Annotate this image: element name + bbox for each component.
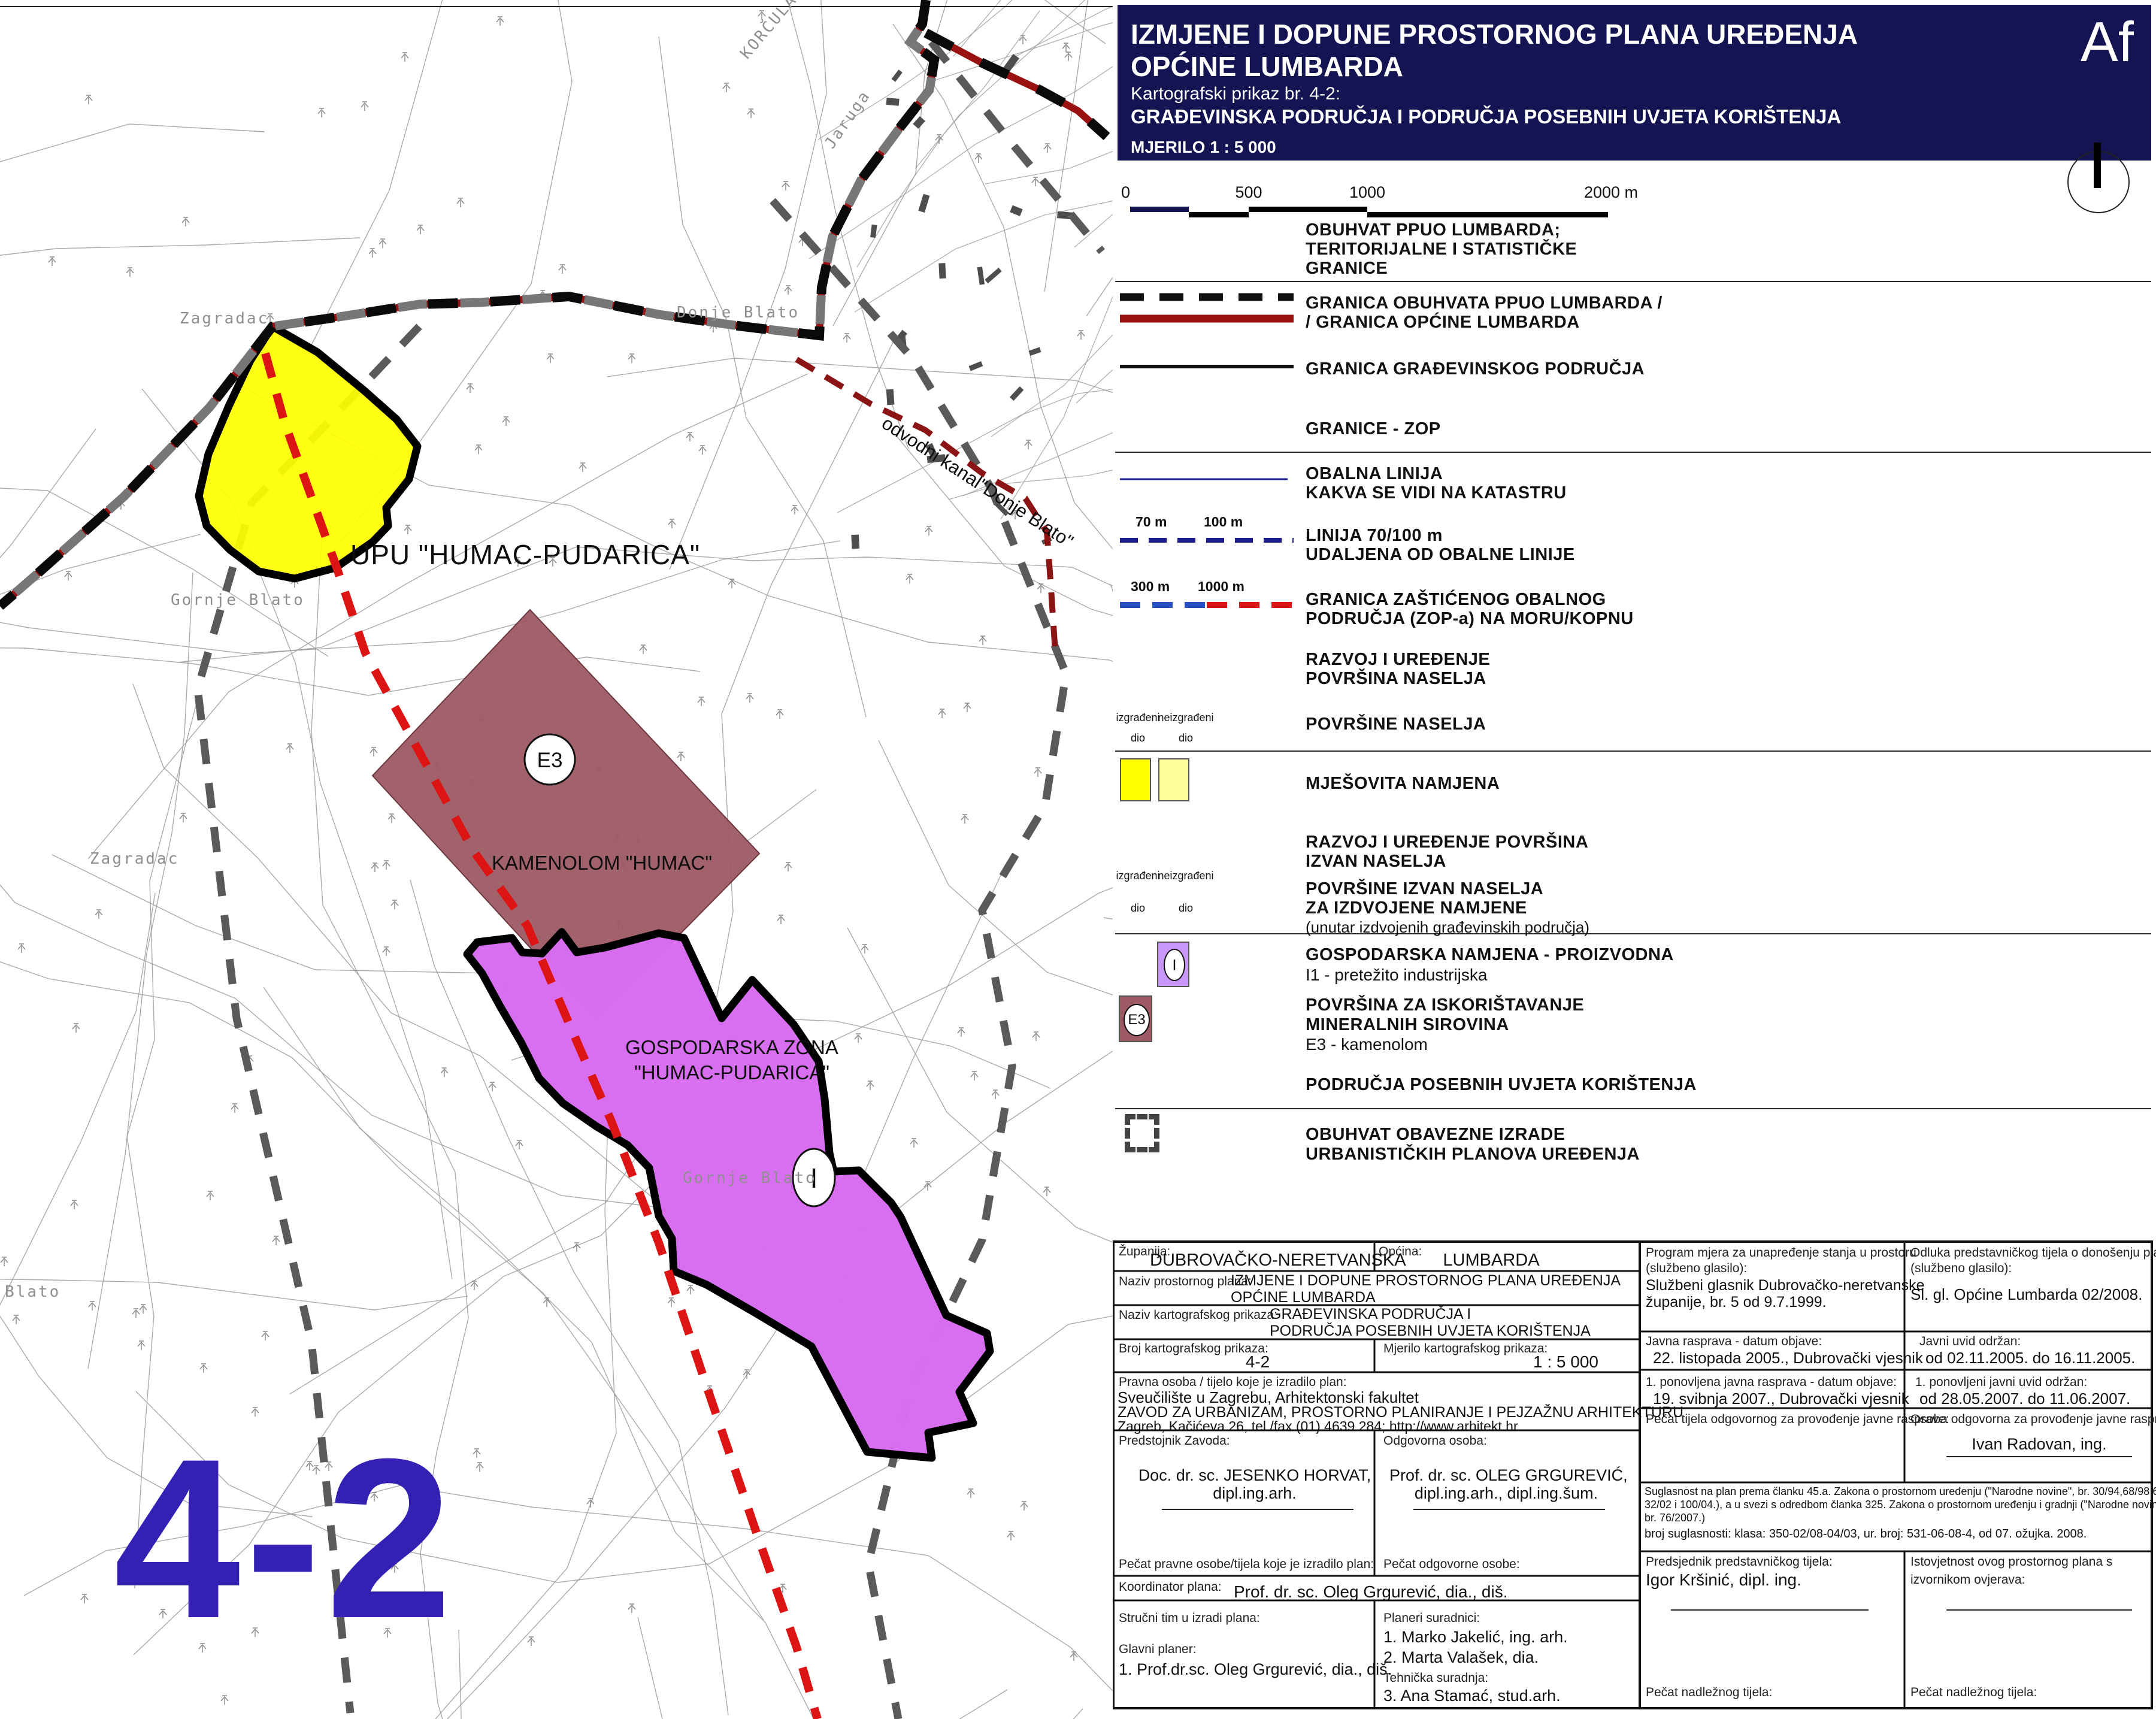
scale-tick-0: 0 (1121, 183, 1130, 202)
legend-mineralne-l3: E3 - kamenolom (1306, 1035, 1428, 1054)
legend-gospodarska-l2: I1 - pretežito industrijska (1306, 966, 1487, 985)
coordinator-value: Prof. dr. sc. Oleg Grgurević, dia., diš. (1234, 1582, 1508, 1602)
tech-support-value: 3. Ana Stamać, stud.arh. (1383, 1687, 1561, 1705)
legend-header-posebni: PODRUČJA POSEBNIH UVJETA KORIŠTENJA (1306, 1075, 1697, 1095)
scale-tick-2000: 2000 m (1566, 183, 1656, 202)
legal-entity-line3: Zagreb, Kačićeva 26, tel./fax.(01) 4639 … (1118, 1418, 1518, 1434)
plan-title-line1: IZMJENE I DOPUNE PROSTORNOG PLANA UREĐEN… (1131, 18, 1858, 50)
legend-linija70-l1: LINIJA 70/100 m (1306, 526, 1443, 546)
legend-dividers (1115, 282, 2151, 1109)
legend-mineralne-l1: POVRŠINA ZA ISKORIŠTAVANJE (1306, 995, 1584, 1015)
legend-300m-label: 300 m (1131, 579, 1170, 595)
svg-text:Gornje Blato: Gornje Blato (683, 1169, 817, 1187)
scale-bar-seg4 (1367, 212, 1608, 217)
responsible-person-title: dipl.ing.arh., dipl.ing.šum. (1389, 1484, 1623, 1503)
sheet-no-value: 4-2 (1210, 1352, 1306, 1372)
authenticity-label-1: Istovjetnost ovog prostornog plana s (1910, 1555, 2112, 1569)
quarry-label: KAMENOLOM "HUMAC" (492, 852, 712, 874)
responsible-debate-label: Osoba odgovorna za provođenje javne rasp… (1910, 1412, 2156, 1427)
municipality-value: LUMBARDA (1425, 1251, 1557, 1270)
legend-linija70-l2: UDALJENA OD OBALNE LINIJE (1306, 545, 1575, 565)
legend-col-dio-1b: dio (1155, 732, 1217, 745)
stamp-responsible-label: Pečat odgovorne osobe: (1383, 1557, 1520, 1572)
svg-text:Gornje Blato: Gornje Blato (171, 591, 305, 609)
legend-col-neizgradeni-2: neizgrađeni (1155, 870, 1217, 882)
sheet-number: 4-2 (114, 1411, 457, 1666)
scale-label: Mjerilo kartografskog prikaza: (1383, 1342, 1548, 1356)
canal-label: odvodni kanal"Donje Blato" (878, 413, 1077, 552)
plan-sheet: E3 I UPU "HUMAC-PUDARICA" KAMENOLOM "HUM… (0, 0, 2156, 1719)
panel-linework (1113, 0, 2156, 1719)
legend-obuhvat-l3: GRANICE (1306, 259, 1388, 279)
head-of-dept-label: Predstojnik Zavoda: (1119, 1434, 1230, 1448)
repeat-review-label: 1. ponovljeni javni uvid održan: (1915, 1375, 2087, 1390)
responsible-person-label: Odgovorna osoba: (1383, 1434, 1487, 1448)
legend-1000m-label: 1000 m (1198, 579, 1244, 595)
legend-granica-ppuo-l2: / GRANICA OPĆINE LUMBARDA (1306, 313, 1580, 332)
north-indicator-bar (2094, 143, 2101, 188)
zone-industrial-border (467, 932, 990, 1458)
swatch-mixed-built (1120, 758, 1151, 801)
legend-obavezna-l1: OBUHVAT OBAVEZNE IZRADE (1306, 1125, 1565, 1145)
stamp-authority-label-1: Pečat nadležnog tijela: (1646, 1685, 1772, 1700)
authenticity-label-2: izvornikom ovjerava: (1910, 1573, 2025, 1587)
legend-zop-granica-l1: GRANICA ZAŠTIĆENOG OBALNOG (1306, 590, 1606, 610)
legend-header-izvan-l2: IZVAN NASELJA (1306, 852, 1446, 871)
decision-label-2: (službeno glasilo): (1910, 1261, 2012, 1276)
municipality-label: Općina: (1379, 1245, 1422, 1259)
head-of-dept-title: dipl.ing.arh. (1138, 1484, 1371, 1503)
public-debate-value: 22. listopada 2005., Dubrovački vjesnik (1653, 1349, 1923, 1367)
county-value: DUBROVAČKO-NERETVANSKA (1150, 1251, 1371, 1270)
sheet-name-value-1: GRAĐEVINSKA PODRUČJA I (1270, 1306, 1471, 1323)
consent-line-3: br. 76/2007.) (1645, 1512, 1705, 1524)
legend-col-neizgradeni-1: neizgrađeni (1155, 712, 1217, 724)
svg-text:Zagradac: Zagradac (180, 310, 269, 328)
repeat-review-value: od 28.05.2007. do 11.06.2007. (1919, 1390, 2130, 1408)
legal-entity-label: Pravna osoba / tijelo koje je izradilo p… (1119, 1375, 1347, 1390)
tech-support-label: Tehnička suradnja: (1383, 1671, 1488, 1685)
legend-obuhvat-l1: OBUHVAT PPUO LUMBARDA; (1306, 220, 1561, 240)
plan-name-value-1: IZMJENE I DOPUNE PROSTORNOG PLANA UREĐEN… (1231, 1272, 1621, 1290)
program-label-1: Program mjera za unapređenje stanja u pr… (1646, 1246, 1916, 1260)
scale-tick-500: 500 (1222, 183, 1276, 202)
title-block: IZMJENE I DOPUNE PROSTORNOG PLANA UREĐEN… (1118, 5, 2151, 161)
legend-70m-label: 70 m (1135, 514, 1167, 530)
municipal-boundary (0, 0, 1107, 606)
zone-code-e3: E3 (537, 749, 563, 772)
sheet-name-value-2: PODRUČJA POSEBNIH UVJETA KORIŠTENJA (1270, 1322, 1591, 1340)
legend-obavezna-l2: URBANISTIČKIH PLANOVA UREĐENJA (1306, 1145, 1640, 1164)
legend-gradjevinsko: GRANICA GRAĐEVINSKOG PODRUČJA (1306, 359, 1645, 379)
legend-gospodarska-l1: GOSPODARSKA NAMJENA - PROIZVODNA (1306, 945, 1674, 965)
legend-izvan-l3: (unutar izdvojenih građevinskih područja… (1306, 918, 1589, 937)
legend-mjesovita: MJEŠOVITA NAMJENA (1306, 774, 1500, 794)
legend-mineralne-l2: MINERALNIH SIROVINA (1306, 1015, 1509, 1035)
swatch-i-letter: I (1172, 956, 1176, 974)
scale-bar-seg3 (1249, 207, 1367, 212)
svg-text:KORČULA: KORČULA (736, 0, 801, 62)
plan-subtitle: Kartografski prikaz br. 4-2: (1131, 84, 1340, 104)
faculty-logo: Af (2081, 10, 2134, 74)
public-review-value: od 02.11.2005. do 16.11.2005. (1925, 1349, 2135, 1367)
legend-zop-granica-l2: PODRUČJA (ZOP-a) NA MORU/KOPNU (1306, 609, 1634, 629)
main-planner-value: 1. Prof.dr.sc. Oleg Grgurević, dia., diš… (1119, 1660, 1392, 1679)
coordinator-label: Koordinator plana: (1119, 1580, 1222, 1594)
legend-header-izvan-l1: RAZVOJ I UREĐENJE POVRŠINA (1306, 833, 1588, 852)
head-of-dept-name: Doc. dr. sc. JESENKO HORVAT, (1138, 1466, 1371, 1485)
legend-col-dio-2b: dio (1155, 902, 1217, 915)
program-label-2: (službeno glasilo): (1646, 1261, 1747, 1276)
map-sheet-name: GRAĐEVINSKA PODRUČJA I PODRUČJA POSEBNIH… (1131, 105, 1841, 128)
swatch-quarry-code: E3 (1124, 1004, 1150, 1036)
consent-number: broj suglasnosti: klasa: 350-02/08-04/03… (1645, 1527, 2087, 1541)
president-label: Predsjednik predstavničkog tijela: (1646, 1555, 1833, 1569)
map-scale-text: MJERILO 1 : 5 000 (1131, 138, 1276, 157)
consent-line-1: Suglasnost na plan prema članku 45.a. Za… (1645, 1485, 2156, 1498)
president-value: Igor Kršinić, dipl. ing. (1646, 1570, 1801, 1590)
legend-obalna-l2: KAKVA SE VIDI NA KATASTRU (1306, 483, 1567, 503)
scale-tick-1000: 1000 (1337, 183, 1397, 202)
consent-line-2: 32/02 i 100/04.), a u svezi s odredbom č… (1645, 1499, 2156, 1511)
repeat-debate-value: 19. svibnja 2007., Dubrovački vjesnik (1653, 1390, 1909, 1408)
svg-text:Blato: Blato (5, 1283, 60, 1301)
scale-bar-seg1 (1130, 207, 1189, 212)
repeat-debate-label: 1. ponovljena javna rasprava - datum obj… (1646, 1375, 1897, 1390)
legend-header-zop: GRANICE - ZOP (1306, 419, 1441, 439)
swatch-e3-letter: E3 (1128, 1012, 1145, 1028)
public-debate-label: Javna rasprava - datum objave: (1646, 1334, 1822, 1349)
upu-area-label: UPU "HUMAC-PUDARICA" (350, 539, 700, 570)
main-planner-label: Glavni planer: (1119, 1642, 1197, 1657)
swatch-mixed-unbuilt (1158, 758, 1189, 801)
assoc-planner-1: 1. Marko Jakelić, ing. arh. (1383, 1628, 1568, 1647)
stamp-body-label: Pečat tijela odgovornog za provođenje ja… (1646, 1412, 1949, 1427)
business-zone-label-1: GOSPODARSKA ZONA (625, 1036, 838, 1058)
plan-title-line2: OPĆINE LUMBARDA (1131, 50, 1403, 83)
assoc-planner-2: 2. Marta Valašek, dia. (1383, 1648, 1539, 1667)
legend-obalna-l1: OBALNA LINIJA (1306, 464, 1443, 484)
plan-name-value-2: OPĆINE LUMBARDA (1231, 1289, 1376, 1306)
expert-team-label: Stručni tim u izradi plana: (1119, 1611, 1260, 1626)
swatch-industrial-code: I (1164, 949, 1185, 981)
decision-value: Sl. gl. Općine Lumbarda 02/2008. (1910, 1285, 2142, 1304)
public-review-label: Javni uvid održan: (1919, 1334, 2021, 1349)
svg-text:Zagradac: Zagradac (90, 850, 179, 868)
program-value-1: Službeni glasnik Dubrovačko-neretvanske (1646, 1277, 1925, 1294)
legend-obuhvat-l2: TERITORIJALNE I STATISTIČKE (1306, 240, 1577, 259)
sheet-name-label: Naziv kartografskog prikaza: (1119, 1308, 1277, 1322)
cadastral-map: E3 I UPU "HUMAC-PUDARICA" KAMENOLOM "HUM… (0, 0, 1113, 1719)
decision-label-1: Odluka predstavničkog tijela o donošenju… (1910, 1246, 2156, 1260)
responsible-debate-value: Ivan Radovan, ing. (1940, 1435, 2138, 1454)
svg-text:Donje Blato: Donje Blato (677, 304, 800, 322)
svg-text:Jaruga: Jaruga (821, 87, 874, 152)
stamp-legal-entity-label: Pečat pravne osobe/tijela koje je izradi… (1119, 1557, 1374, 1572)
legend-100m-label: 100 m (1204, 514, 1243, 530)
business-zone-label-2: "HUMAC-PUDARICA" (634, 1061, 829, 1084)
legend-header-naselja-l1: RAZVOJ I UREĐENJE (1306, 650, 1490, 670)
legend-izvan-l1: POVRŠINE IZVAN NASELJA (1306, 879, 1543, 899)
assoc-planners-label: Planeri suradnici: (1383, 1611, 1480, 1626)
symbol-obavezna-izrada-square (1125, 1114, 1159, 1152)
scale-bar-seg2 (1189, 212, 1249, 217)
program-value-2: županije, br. 5 od 9.7.1999. (1646, 1294, 1827, 1311)
stamp-authority-label-2: Pečat nadležnog tijela: (1910, 1685, 2037, 1700)
scale-value: 1 : 5 000 (1533, 1352, 1598, 1372)
legend-header-naselja-l2: POVRŠINA NASELJA (1306, 669, 1486, 689)
responsible-person-name: Prof. dr. sc. OLEG GRGUREVIĆ, (1389, 1466, 1623, 1485)
legend-povrsine-naselja: POVRŠINE NASELJA (1306, 715, 1486, 734)
legend-granica-ppuo-l1: GRANICA OBUHVATA PPUO LUMBARDA / (1306, 293, 1663, 313)
legend-izvan-l2: ZA IZDVOJENE NAMJENE (1306, 898, 1527, 918)
